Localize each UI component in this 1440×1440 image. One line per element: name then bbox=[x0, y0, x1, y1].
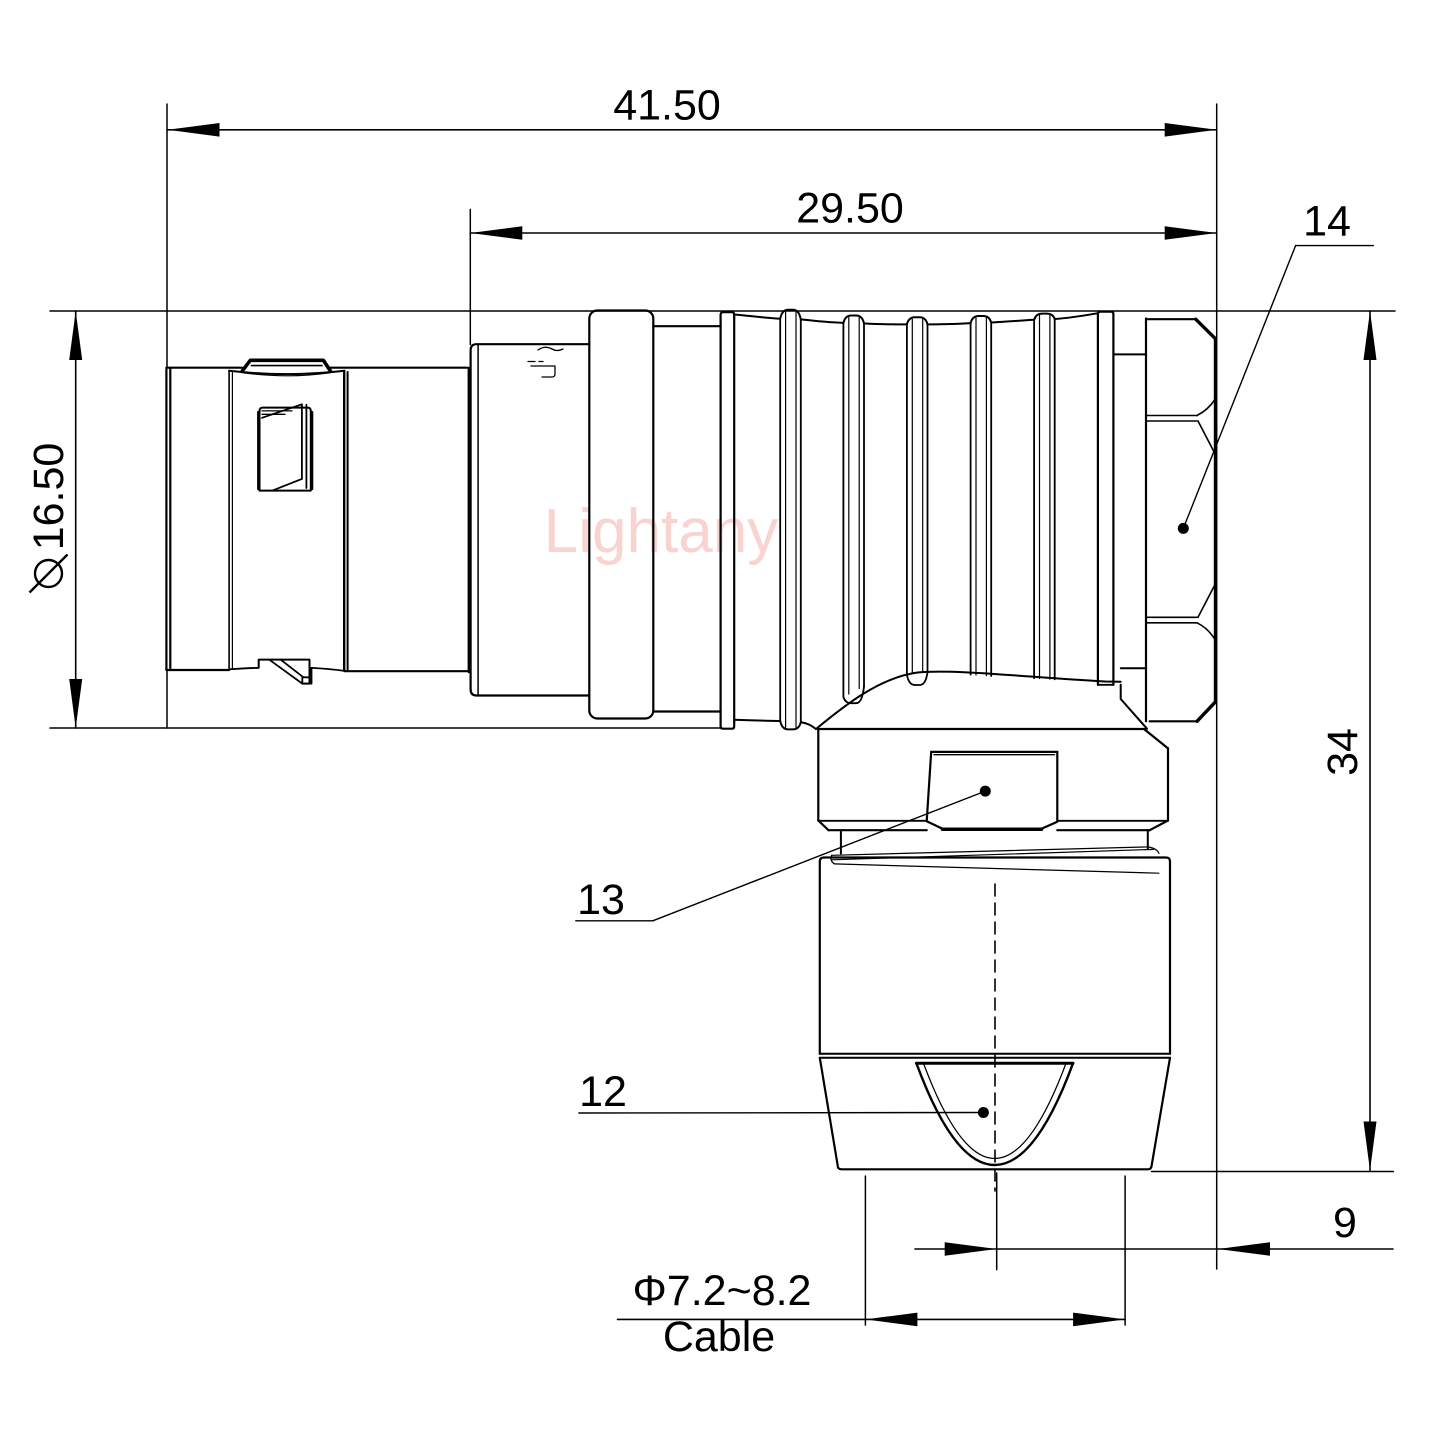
svg-text:34: 34 bbox=[1319, 728, 1367, 776]
svg-text:Φ7.2~8.2: Φ7.2~8.2 bbox=[633, 1267, 812, 1315]
svg-text:29.50: 29.50 bbox=[796, 185, 904, 233]
svg-text:16.50: 16.50 bbox=[25, 443, 73, 551]
svg-text:41.50: 41.50 bbox=[613, 82, 721, 130]
svg-text:12: 12 bbox=[579, 1068, 627, 1116]
svg-text:14: 14 bbox=[1303, 198, 1351, 246]
svg-text:Cable: Cable bbox=[663, 1313, 775, 1361]
svg-text:13: 13 bbox=[577, 876, 625, 924]
svg-text:9: 9 bbox=[1333, 1199, 1357, 1247]
svg-text:Lightany: Lightany bbox=[544, 497, 778, 566]
